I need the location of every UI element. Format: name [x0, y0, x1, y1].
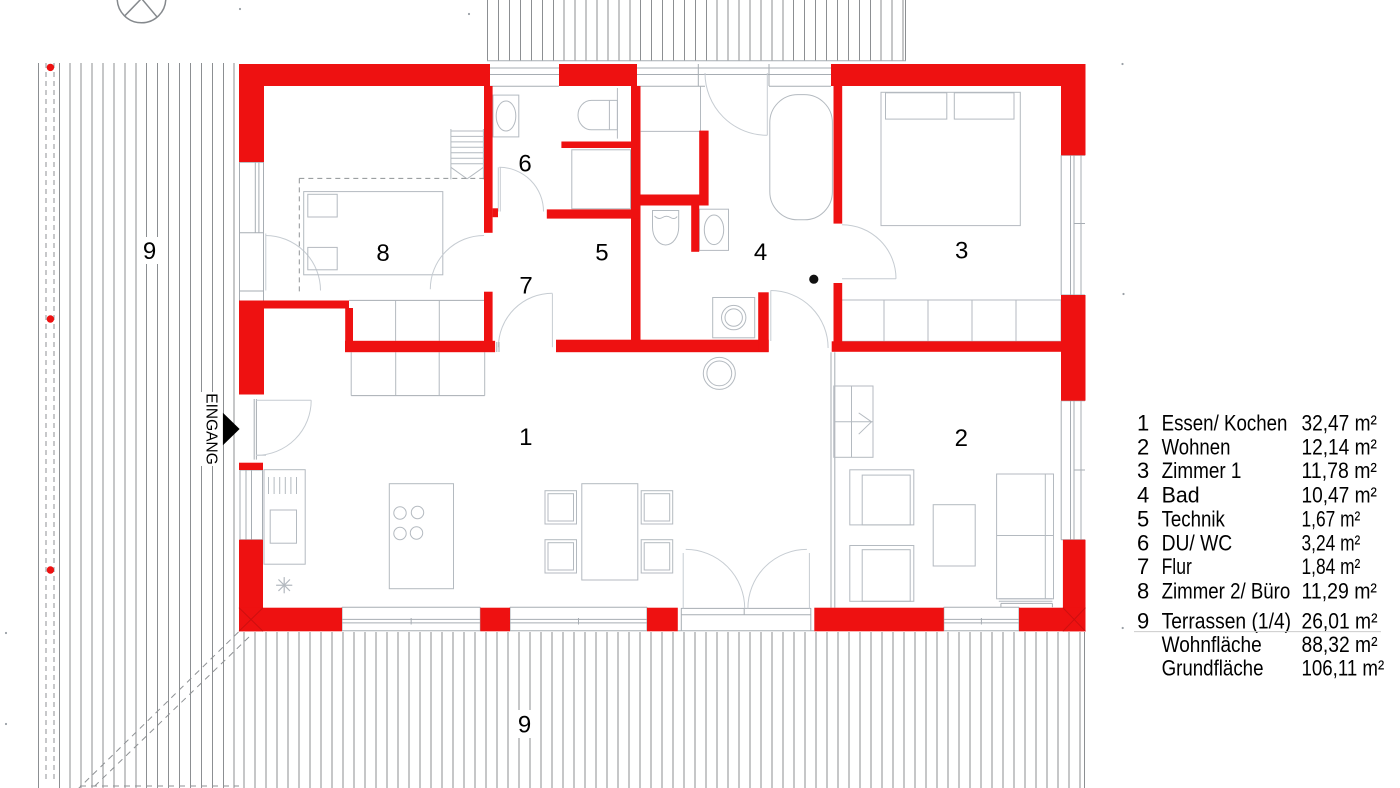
svg-text:4: 4	[754, 239, 767, 266]
svg-text:26,01 m²: 26,01 m²	[1302, 609, 1378, 634]
svg-text:9: 9	[1137, 609, 1149, 634]
svg-text:5: 5	[595, 240, 608, 267]
svg-text:32,47 m²: 32,47 m²	[1302, 411, 1377, 436]
svg-text:11,78 m²: 11,78 m²	[1302, 458, 1377, 483]
svg-text:Flur: Flur	[1162, 554, 1192, 579]
svg-text:Wohnfläche: Wohnfläche	[1162, 632, 1262, 657]
svg-text:8: 8	[376, 240, 389, 267]
svg-text:9: 9	[143, 238, 156, 265]
svg-text:1,84 m²: 1,84 m²	[1302, 554, 1361, 579]
svg-text:10,47 m²: 10,47 m²	[1302, 482, 1377, 507]
svg-text:EINGANG: EINGANG	[203, 393, 220, 464]
svg-text:3: 3	[1137, 458, 1149, 483]
svg-text:3: 3	[955, 237, 968, 264]
svg-text:1: 1	[1137, 411, 1149, 436]
svg-text:7: 7	[519, 273, 532, 300]
svg-text:106,11 m²: 106,11 m²	[1302, 656, 1385, 681]
svg-text:Bad: Bad	[1162, 482, 1200, 507]
svg-text:8: 8	[1137, 579, 1149, 604]
svg-text:2: 2	[955, 425, 968, 452]
svg-text:Grundfläche: Grundfläche	[1162, 656, 1264, 681]
svg-text:Zimmer 2/ Büro: Zimmer 2/ Büro	[1162, 579, 1291, 604]
svg-text:Wohnen: Wohnen	[1162, 435, 1231, 460]
svg-text:Terrassen (1/4): Terrassen (1/4)	[1162, 609, 1292, 634]
svg-text:Technik: Technik	[1162, 506, 1226, 531]
svg-text:DU/ WC: DU/ WC	[1162, 530, 1233, 555]
svg-text:1,67 m²: 1,67 m²	[1302, 506, 1361, 531]
svg-text:4: 4	[1137, 482, 1149, 507]
svg-text:6: 6	[1137, 530, 1149, 555]
svg-text:Essen/ Kochen: Essen/ Kochen	[1162, 411, 1288, 436]
svg-text:11,29 m²: 11,29 m²	[1302, 579, 1377, 604]
svg-text:2: 2	[1137, 435, 1149, 460]
svg-text:9: 9	[518, 711, 531, 738]
svg-text:7: 7	[1137, 554, 1149, 579]
svg-text:5: 5	[1137, 506, 1149, 531]
svg-text:3,24 m²: 3,24 m²	[1302, 530, 1361, 555]
svg-text:Zimmer 1: Zimmer 1	[1162, 458, 1242, 483]
svg-text:6: 6	[518, 150, 531, 177]
svg-text:1: 1	[519, 424, 532, 451]
svg-text:88,32 m²: 88,32 m²	[1302, 632, 1378, 657]
svg-text:12,14 m²: 12,14 m²	[1302, 435, 1377, 460]
